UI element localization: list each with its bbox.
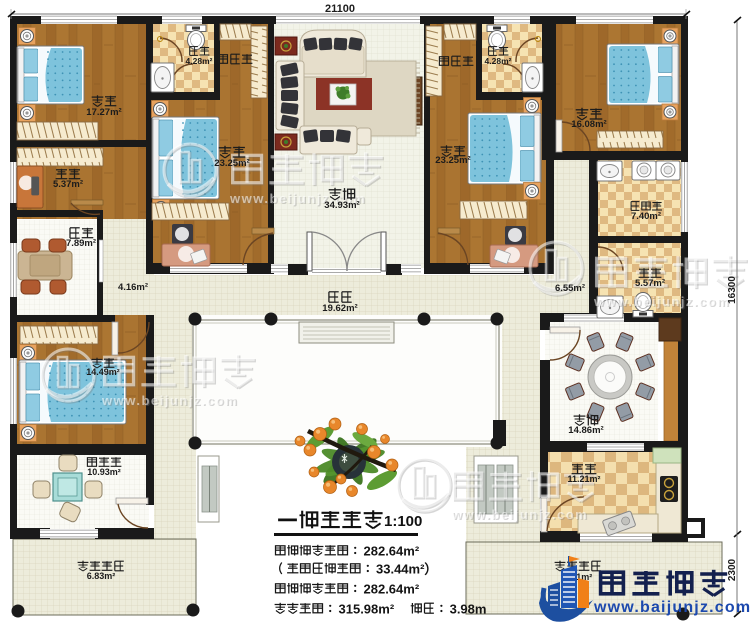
svg-text:33.44m²）: 33.44m²）	[376, 562, 437, 577]
svg-text:282.64m²: 282.64m²	[364, 544, 420, 559]
svg-text:www.beijunjz.com: www.beijunjz.com	[101, 393, 238, 408]
svg-text:34.93m²: 34.93m²	[324, 200, 359, 211]
svg-text:14.86m²: 14.86m²	[568, 425, 603, 436]
svg-text:3.98m: 3.98m	[450, 602, 487, 617]
svg-text:282.64m²: 282.64m²	[364, 582, 420, 597]
svg-text:7.40m²: 7.40m²	[631, 211, 661, 222]
svg-text:16.08m²: 16.08m²	[571, 119, 606, 130]
svg-text:www.beijunjz.com: www.beijunjz.com	[593, 294, 730, 309]
svg-text:6.55m²: 6.55m²	[555, 283, 585, 294]
svg-text:21100: 21100	[325, 3, 355, 15]
svg-text:315.98m²: 315.98m²	[339, 602, 395, 617]
svg-text:5.57m²: 5.57m²	[635, 278, 665, 289]
svg-text:16300: 16300	[727, 276, 738, 304]
svg-text:11.21m²: 11.21m²	[567, 474, 600, 484]
svg-text:2300: 2300	[727, 558, 738, 581]
svg-text:14.49m²: 14.49m²	[86, 367, 120, 377]
svg-text:6.83m²: 6.83m²	[87, 571, 116, 581]
svg-text:7.89m²: 7.89m²	[66, 238, 96, 249]
svg-text:17.27m²: 17.27m²	[86, 107, 121, 118]
svg-text:4.28m²: 4.28m²	[485, 56, 512, 66]
svg-text:www.beijunjz.com: www.beijunjz.com	[451, 507, 588, 522]
svg-text:4.28m²: 4.28m²	[186, 56, 213, 66]
svg-text:1:100: 1:100	[384, 513, 422, 530]
svg-text:www.baijunjz.com: www.baijunjz.com	[593, 599, 750, 616]
svg-text:23.25m²: 23.25m²	[435, 155, 470, 166]
svg-text:23.25m²: 23.25m²	[214, 158, 249, 169]
svg-text:10.93m²: 10.93m²	[87, 467, 121, 477]
svg-text:19.62m²: 19.62m²	[322, 303, 357, 314]
svg-text:4.16m²: 4.16m²	[118, 282, 148, 293]
svg-text:5.37m²: 5.37m²	[53, 179, 83, 190]
